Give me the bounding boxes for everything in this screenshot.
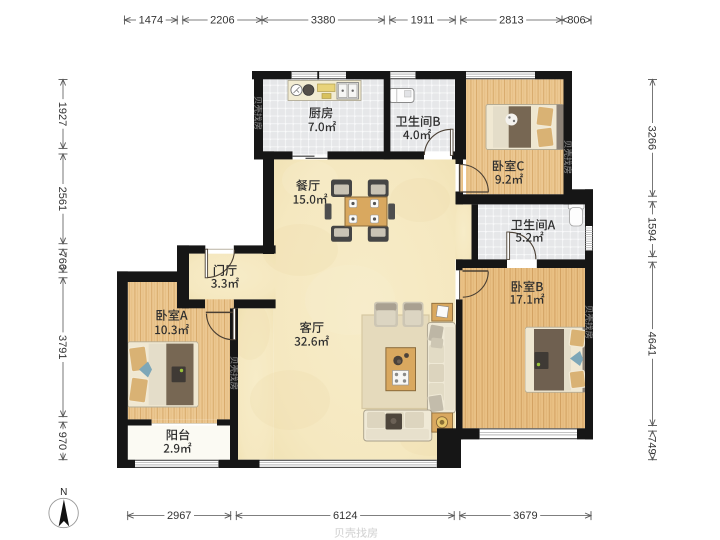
svg-text:749: 749 [645, 436, 657, 454]
svg-text:6124: 6124 [333, 510, 357, 522]
svg-text:3679: 3679 [513, 510, 537, 522]
svg-text:806: 806 [567, 15, 585, 27]
svg-text:3380: 3380 [311, 15, 335, 27]
svg-text:766: 766 [56, 252, 68, 270]
svg-text:1927: 1927 [56, 102, 68, 126]
svg-text:N: N [60, 487, 67, 498]
svg-text:1911: 1911 [411, 15, 435, 27]
svg-text:1594: 1594 [645, 217, 657, 241]
svg-text:3266: 3266 [645, 126, 657, 150]
svg-text:2206: 2206 [210, 15, 234, 27]
svg-text:2813: 2813 [499, 15, 523, 27]
svg-text:2561: 2561 [56, 187, 68, 211]
svg-text:1474: 1474 [139, 15, 163, 27]
svg-text:970: 970 [56, 432, 68, 450]
svg-text:2967: 2967 [167, 510, 191, 522]
svg-text:3791: 3791 [56, 335, 68, 359]
svg-text:4641: 4641 [645, 332, 657, 356]
